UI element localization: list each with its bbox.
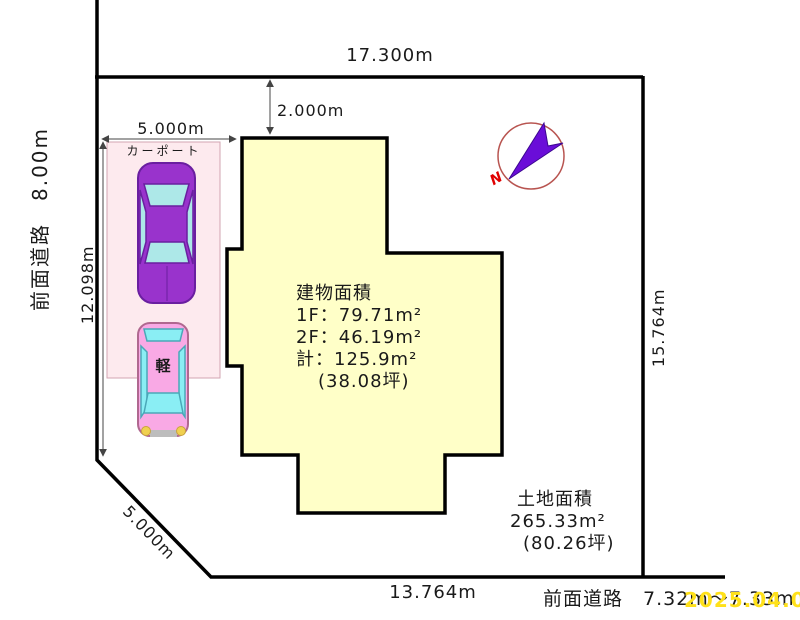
sedan-front-window — [144, 184, 189, 206]
kei-car-icon — [138, 323, 188, 437]
building-area-title: 建物面積 — [296, 283, 422, 305]
kei-front-window — [144, 329, 183, 341]
land-area-tsubo: (80.26坪) — [510, 533, 615, 555]
site-plan: 17.300m 2.000m 5.000m カーポート 軽 前面道路 8.00m… — [0, 0, 800, 620]
dim-setback: 2.000m — [277, 102, 344, 120]
compass — [498, 123, 564, 189]
building-area-1f: 1F：79.71m² — [296, 305, 422, 327]
dim-bottom-width: 13.764m — [383, 583, 483, 603]
land-area-value: 265.33m² — [510, 511, 615, 533]
kei-bumper — [150, 430, 177, 437]
dim-right-depth: 15.764m — [650, 273, 668, 383]
sedan-rear-window — [145, 242, 189, 263]
carport-label: カーポート — [110, 145, 218, 158]
road-label-left: 前面道路 8.00m — [29, 99, 51, 339]
building-area-total: 計：125.9m² — [296, 349, 422, 371]
sedan-car-icon — [138, 163, 195, 303]
dim-top-width: 17.300m — [330, 46, 450, 66]
building-area-2f: 2F：46.19m² — [296, 327, 422, 349]
land-area-block: 土地面積 265.33m² (80.26坪) — [510, 489, 615, 555]
building-area-tsubo: (38.08坪) — [296, 371, 422, 393]
date-watermark: 2025.04.04 — [684, 589, 800, 611]
dim-carport-width: 5.000m — [121, 120, 221, 138]
compass-needle-icon — [509, 123, 563, 179]
land-area-title: 土地面積 — [510, 489, 615, 511]
kei-headlight-left — [142, 427, 151, 436]
building-area-block: 建物面積 1F：79.71m² 2F：46.19m² 計：125.9m² (38… — [296, 283, 422, 393]
kei-headlight-right — [177, 427, 186, 436]
kei-car-badge: 軽 — [148, 358, 178, 375]
kei-rear-window — [144, 393, 183, 413]
dim-left-depth: 12.098m — [79, 230, 97, 340]
